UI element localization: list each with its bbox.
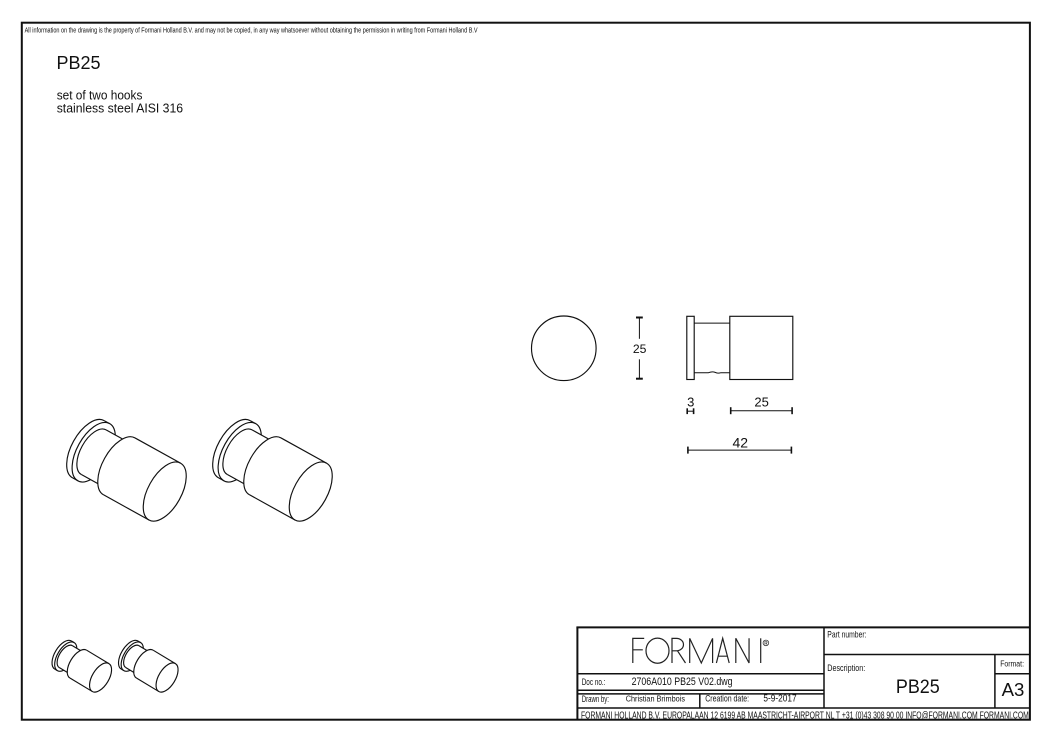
svg-text:FORMANI HOLLAND B.V. EUROPALA: FORMANI HOLLAND B.V. EUROPALAAN 12 6199 …: [581, 710, 1029, 721]
svg-text:A3: A3: [1002, 679, 1025, 700]
svg-text:All information on the drawing: All information on the drawing is the pr…: [25, 28, 478, 35]
svg-text:25: 25: [754, 395, 768, 410]
svg-text:PB25: PB25: [896, 676, 940, 698]
svg-text:Format:: Format:: [1000, 660, 1024, 669]
svg-text:5-9-2017: 5-9-2017: [763, 694, 797, 705]
svg-text:Doc no.:: Doc no.:: [582, 677, 606, 687]
svg-text:42: 42: [733, 435, 749, 451]
svg-text:set of two hooks: set of two hooks: [57, 88, 143, 102]
svg-text:Creation date:: Creation date:: [705, 694, 749, 704]
svg-text:Christian Brimbois: Christian Brimbois: [626, 694, 685, 704]
svg-text:3: 3: [687, 395, 694, 410]
svg-text:PB25: PB25: [57, 53, 101, 73]
svg-text:Drawn by:: Drawn by:: [582, 694, 609, 704]
svg-text:2706A010 PB25 V02.dwg: 2706A010 PB25 V02.dwg: [632, 676, 733, 688]
svg-text:Description:: Description:: [827, 663, 865, 673]
svg-text:stainless steel AISI 316: stainless steel AISI 316: [57, 101, 183, 115]
svg-text:Part number:: Part number:: [827, 630, 866, 640]
svg-text:25: 25: [633, 342, 647, 356]
